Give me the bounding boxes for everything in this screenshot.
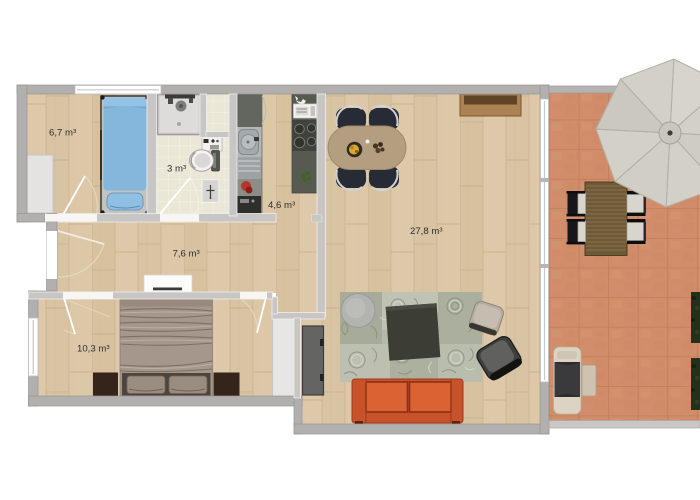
svg-text:3 m³: 3 m³ [167,164,186,175]
svg-text:4,6 m³: 4,6 m³ [268,200,295,211]
svg-text:6,7 m³: 6,7 m³ [49,128,76,139]
svg-text:7,6 m³: 7,6 m³ [173,249,200,260]
svg-text:10,3 m³: 10,3 m³ [77,344,110,355]
svg-text:27,8 m³: 27,8 m³ [410,226,443,237]
